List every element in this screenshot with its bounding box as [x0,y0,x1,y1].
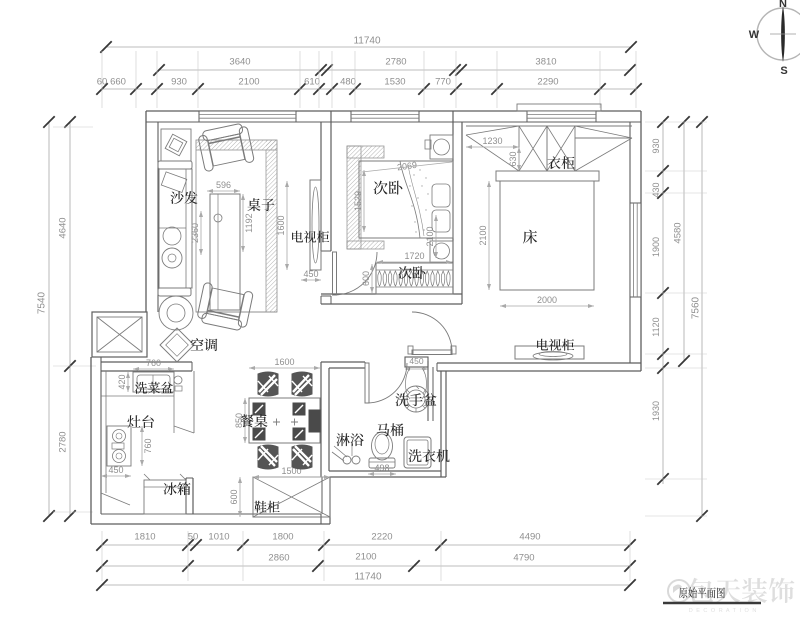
svg-text:2100: 2100 [355,551,376,562]
svg-text:1530: 1530 [384,76,405,87]
svg-text:N: N [779,0,787,10]
svg-text:600: 600 [361,271,371,286]
svg-text:7540: 7540 [37,291,48,314]
svg-text:50: 50 [188,531,199,542]
svg-text:1720: 1720 [404,251,424,261]
svg-text:S: S [780,65,787,77]
svg-text:770: 770 [435,76,451,87]
svg-text:2100: 2100 [425,226,435,246]
svg-text:2000: 2000 [537,295,557,305]
svg-text:7560: 7560 [691,296,702,319]
svg-text:4490: 4490 [519,531,540,542]
svg-text:1600: 1600 [276,215,286,235]
svg-text:660: 660 [110,76,126,87]
svg-text:630: 630 [508,151,518,166]
svg-text:1192: 1192 [244,213,254,232]
svg-text:1230: 1230 [482,136,502,146]
svg-text:3640: 3640 [229,56,250,67]
svg-text:610: 610 [304,76,320,87]
svg-text:450: 450 [108,465,123,475]
svg-text:930: 930 [651,138,661,153]
svg-text:1810: 1810 [134,531,155,542]
svg-text:1120: 1120 [651,317,661,336]
svg-text:930: 930 [171,76,187,87]
svg-text:3810: 3810 [535,56,556,67]
svg-text:W: W [749,29,760,41]
svg-text:4640: 4640 [57,217,68,238]
svg-text:11740: 11740 [353,36,381,47]
svg-text:1930: 1930 [651,401,661,421]
svg-text:11740: 11740 [354,572,382,583]
svg-text:450: 450 [303,269,318,279]
svg-text:2220: 2220 [371,531,392,542]
svg-text:1900: 1900 [651,237,661,257]
svg-text:420: 420 [117,374,127,389]
svg-text:850: 850 [234,413,244,428]
svg-text:760: 760 [146,358,161,368]
svg-text:2780: 2780 [57,431,68,452]
svg-text:596: 596 [216,180,231,190]
svg-text:2360: 2360 [190,223,200,243]
svg-text:450: 450 [409,356,423,366]
svg-text:D E C O R A T I O N: D E C O R A T I O N [689,608,758,614]
svg-text:600: 600 [229,489,239,504]
svg-text:4790: 4790 [513,552,534,563]
svg-text:430: 430 [651,182,661,197]
svg-text:2290: 2290 [537,76,558,87]
svg-text:1600: 1600 [274,357,294,367]
svg-text:2100: 2100 [238,76,259,87]
svg-text:480: 480 [340,76,356,87]
svg-text:1800: 1800 [272,531,293,542]
svg-text:2780: 2780 [385,56,406,67]
svg-text:1529: 1529 [353,191,363,211]
svg-text:498: 498 [374,463,389,473]
svg-text:760: 760 [143,438,153,453]
svg-text:2860: 2860 [268,552,289,563]
svg-text:4580: 4580 [672,222,683,243]
svg-text:1010: 1010 [208,531,229,542]
svg-text:2100: 2100 [478,225,488,245]
